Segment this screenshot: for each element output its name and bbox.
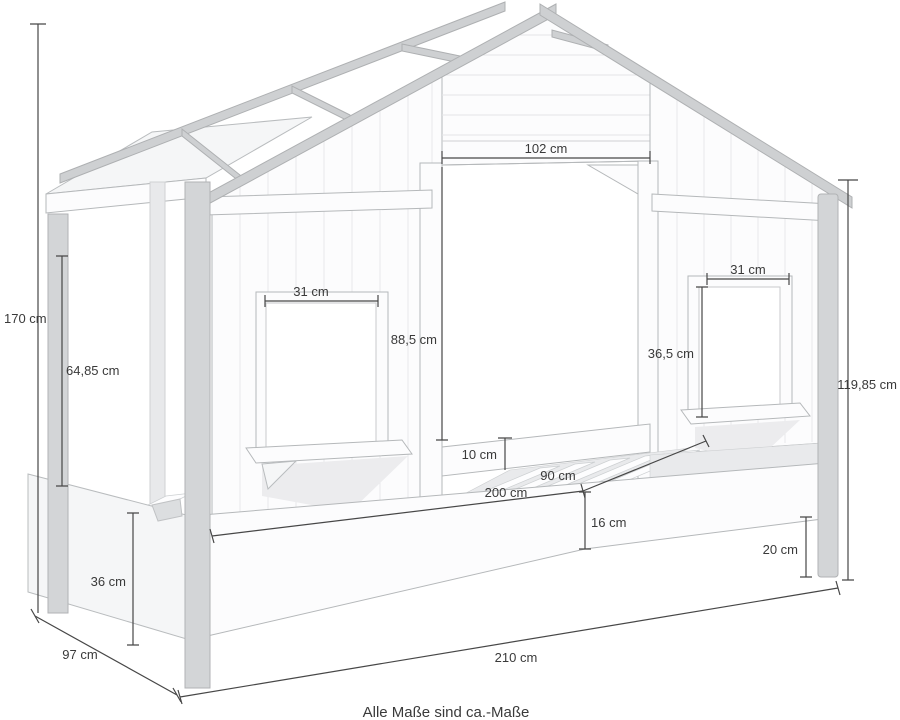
dim-line-leg-height — [800, 517, 812, 577]
canopy-front-post — [48, 214, 68, 613]
bed-structure — [28, 2, 852, 688]
dim-guard-rail-label: 10 cm — [462, 447, 497, 462]
dim-lying-width-label: 90 cm — [540, 468, 575, 483]
dim-total-length-label: 210 cm — [495, 650, 538, 665]
dim-canopy-height-label: 64,85 cm — [66, 363, 119, 378]
diagram-stage: 170 cm 97 cm 210 cm 119,85 cm 102 cm 88,… — [0, 0, 900, 720]
dim-entry-width-label: 102 cm — [525, 141, 568, 156]
dim-entry-height-label: 88,5 cm — [391, 332, 437, 347]
dim-total-height-label: 170 cm — [4, 311, 47, 326]
measurements-note: Alle Maße sind ca.-Maße — [363, 704, 530, 720]
dim-lying-length-label: 200 cm — [485, 485, 528, 500]
dim-frame-height-label: 16 cm — [591, 515, 626, 530]
dim-leg-height-label: 20 cm — [763, 542, 798, 557]
front-left-post — [185, 182, 210, 688]
dim-window-right-height-label: 36,5 cm — [648, 346, 694, 361]
dim-window-left-width-label: 31 cm — [293, 284, 328, 299]
door-corner-brace — [588, 165, 638, 194]
canopy-rear-post — [150, 182, 165, 512]
dim-clearance-label: 36 cm — [91, 574, 126, 589]
right-post — [818, 194, 838, 577]
dim-roof-edge-height-label: 119,85 cm — [837, 377, 897, 392]
house-bed-dimension-diagram: 170 cm 97 cm 210 cm 119,85 cm 102 cm 88,… — [0, 0, 900, 720]
dim-window-right-width-label: 31 cm — [730, 262, 765, 277]
dim-depth-label: 97 cm — [62, 647, 97, 662]
